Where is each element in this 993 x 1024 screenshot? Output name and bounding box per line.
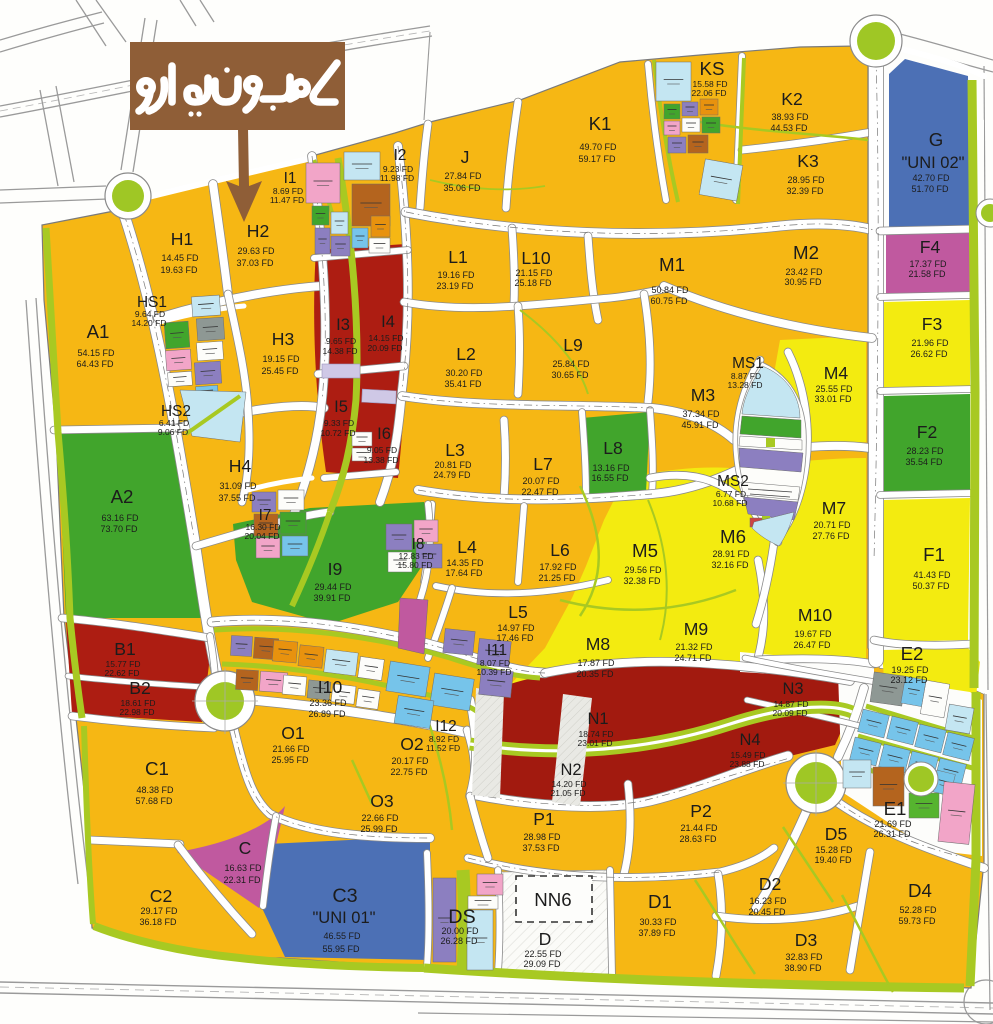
svg-text:57.68 FD: 57.68 FD <box>135 796 173 806</box>
svg-text:M10: M10 <box>798 605 832 625</box>
svg-text:29.56 FD: 29.56 FD <box>624 565 662 575</box>
svg-text:M6: M6 <box>720 526 746 547</box>
svg-text:37.34 FD: 37.34 FD <box>682 409 720 419</box>
svg-text:P1: P1 <box>533 809 555 829</box>
svg-text:16.23 FD: 16.23 FD <box>749 896 787 906</box>
svg-text:M5: M5 <box>632 540 658 561</box>
svg-text:16.55 FD: 16.55 FD <box>591 473 629 483</box>
svg-text:32.16 FD: 32.16 FD <box>711 560 749 570</box>
svg-text:26.28 FD: 26.28 FD <box>440 936 478 946</box>
svg-text:C1: C1 <box>145 758 169 779</box>
svg-text:20.45 FD: 20.45 FD <box>748 907 786 917</box>
svg-text:I11: I11 <box>487 642 507 659</box>
svg-text:10.72 FD: 10.72 FD <box>321 428 356 438</box>
svg-text:26.89 FD: 26.89 FD <box>308 709 346 719</box>
svg-text:F1: F1 <box>923 544 945 565</box>
svg-text:23.01 FD: 23.01 FD <box>578 738 613 748</box>
svg-text:17.87 FD: 17.87 FD <box>577 658 615 668</box>
svg-text:I4: I4 <box>381 313 395 331</box>
svg-text:14.38 FD: 14.38 FD <box>323 346 358 356</box>
svg-text:16.63 FD: 16.63 FD <box>224 863 262 873</box>
svg-text:32.83 FD: 32.83 FD <box>785 952 823 962</box>
svg-text:O1: O1 <box>281 723 304 743</box>
svg-text:I2: I2 <box>394 147 407 164</box>
svg-text:50.84 FD: 50.84 FD <box>651 285 689 295</box>
svg-text:37.55 FD: 37.55 FD <box>218 493 256 503</box>
svg-text:K2: K2 <box>781 89 803 109</box>
svg-text:E1: E1 <box>884 798 907 819</box>
svg-text:J: J <box>461 147 470 167</box>
svg-text:I9: I9 <box>328 559 343 579</box>
svg-text:9.33 FD: 9.33 FD <box>324 418 354 428</box>
svg-text:73.70 FD: 73.70 FD <box>100 524 138 534</box>
svg-text:45.91 FD: 45.91 FD <box>681 420 719 430</box>
svg-text:P2: P2 <box>690 801 712 821</box>
svg-text:29.09 FD: 29.09 FD <box>523 959 561 969</box>
svg-text:N1: N1 <box>587 710 608 728</box>
svg-text:32.38 FD: 32.38 FD <box>623 576 661 586</box>
svg-text:37.53 FD: 37.53 FD <box>522 843 560 853</box>
svg-text:20.07 FD: 20.07 FD <box>522 476 560 486</box>
svg-text:22.47 FD: 22.47 FD <box>521 487 559 497</box>
svg-text:M4: M4 <box>824 363 849 383</box>
svg-text:14.45 FD: 14.45 FD <box>161 253 199 263</box>
svg-text:28.23 FD: 28.23 FD <box>906 446 944 456</box>
svg-text:D: D <box>539 929 552 949</box>
svg-text:60.75 FD: 60.75 FD <box>650 296 688 306</box>
svg-text:21.25 FD: 21.25 FD <box>538 573 576 583</box>
svg-text:22.66 FD: 22.66 FD <box>361 813 399 823</box>
svg-text:N2: N2 <box>560 761 581 779</box>
svg-text:37.03 FD: 37.03 FD <box>236 258 274 268</box>
svg-text:25.18 FD: 25.18 FD <box>514 278 552 288</box>
svg-text:26.31 FD: 26.31 FD <box>873 829 911 839</box>
svg-text:21.69 FD: 21.69 FD <box>874 819 912 829</box>
svg-text:L6: L6 <box>550 540 570 560</box>
svg-text:14.20 FD: 14.20 FD <box>132 318 167 328</box>
svg-text:D3: D3 <box>795 930 818 950</box>
svg-text:L2: L2 <box>456 344 476 364</box>
svg-text:32.39 FD: 32.39 FD <box>786 186 824 196</box>
svg-text:L3: L3 <box>445 440 465 460</box>
svg-text:I5: I5 <box>334 398 348 416</box>
svg-text:L1: L1 <box>448 247 468 267</box>
svg-text:46.55 FD: 46.55 FD <box>323 931 361 941</box>
svg-text:M9: M9 <box>684 619 708 639</box>
svg-text:I3: I3 <box>336 316 350 334</box>
svg-text:M2: M2 <box>793 242 819 263</box>
svg-text:59.17 FD: 59.17 FD <box>578 154 616 164</box>
svg-text:39.91 FD: 39.91 FD <box>313 593 351 603</box>
svg-text:A1: A1 <box>87 321 110 342</box>
svg-text:B2: B2 <box>129 678 151 698</box>
svg-text:DS: DS <box>448 906 475 928</box>
svg-text:D5: D5 <box>825 824 848 844</box>
svg-text:54.15 FD: 54.15 FD <box>77 348 115 358</box>
svg-text:28.63 FD: 28.63 FD <box>679 834 717 844</box>
svg-text:D4: D4 <box>908 880 932 901</box>
svg-text:17.92 FD: 17.92 FD <box>539 562 577 572</box>
svg-text:42.70 FD: 42.70 FD <box>912 173 950 183</box>
svg-text:A2: A2 <box>111 486 134 507</box>
svg-text:30.95 FD: 30.95 FD <box>784 277 822 287</box>
svg-text:19.63 FD: 19.63 FD <box>160 265 198 275</box>
svg-text:9.05 FD: 9.05 FD <box>367 445 397 455</box>
svg-text:M7: M7 <box>822 498 846 518</box>
svg-text:G: G <box>929 129 944 150</box>
svg-text:21.32 FD: 21.32 FD <box>675 642 713 652</box>
svg-text:15.28 FD: 15.28 FD <box>815 845 853 855</box>
svg-text:F3: F3 <box>922 314 943 334</box>
svg-text:22.31 FD: 22.31 FD <box>223 875 261 885</box>
svg-text:H1: H1 <box>171 229 194 249</box>
svg-text:10.39 FD: 10.39 FD <box>477 667 512 677</box>
svg-text:25.95 FD: 25.95 FD <box>271 755 309 765</box>
svg-text:C: C <box>239 838 252 858</box>
svg-text:NN6: NN6 <box>534 889 571 910</box>
svg-text:14.35 FD: 14.35 FD <box>446 558 484 568</box>
svg-text:19.16 FD: 19.16 FD <box>437 270 475 280</box>
svg-text:29.63 FD: 29.63 FD <box>237 246 275 256</box>
svg-text:30.33 FD: 30.33 FD <box>639 917 677 927</box>
svg-text:25.45 FD: 25.45 FD <box>261 366 299 376</box>
svg-text:21.15 FD: 21.15 FD <box>515 268 553 278</box>
svg-text:21.96 FD: 21.96 FD <box>911 338 949 348</box>
svg-text:N3: N3 <box>782 680 803 698</box>
svg-text:20.00 FD: 20.00 FD <box>441 926 479 936</box>
svg-text:I12: I12 <box>435 718 456 735</box>
svg-text:25.99 FD: 25.99 FD <box>360 824 398 834</box>
svg-text:21.44 FD: 21.44 FD <box>680 823 718 833</box>
svg-text:"UNI 01": "UNI 01" <box>312 909 375 927</box>
svg-text:49.70 FD: 49.70 FD <box>579 142 617 152</box>
svg-text:29.17 FD: 29.17 FD <box>140 906 178 916</box>
svg-text:19.67 FD: 19.67 FD <box>794 629 832 639</box>
svg-text:KS: KS <box>700 58 725 79</box>
svg-text:M3: M3 <box>691 385 716 405</box>
svg-text:35.06 FD: 35.06 FD <box>443 183 481 193</box>
svg-text:M8: M8 <box>586 634 611 654</box>
svg-text:20.81 FD: 20.81 FD <box>434 460 472 470</box>
svg-text:F2: F2 <box>917 422 938 442</box>
svg-text:17.64 FD: 17.64 FD <box>445 568 483 578</box>
svg-text:17.46 FD: 17.46 FD <box>496 633 534 643</box>
svg-text:13.38 FD: 13.38 FD <box>364 455 399 465</box>
svg-text:21.05 FD: 21.05 FD <box>551 788 586 798</box>
svg-text:23.88 FD: 23.88 FD <box>730 759 765 769</box>
svg-text:63.16 FD: 63.16 FD <box>101 513 139 523</box>
svg-text:13.16 FD: 13.16 FD <box>592 463 630 473</box>
svg-text:48.38 FD: 48.38 FD <box>136 785 174 795</box>
svg-text:23.12 FD: 23.12 FD <box>890 675 928 685</box>
svg-text:20.17 FD: 20.17 FD <box>391 756 429 766</box>
svg-text:9.65 FD: 9.65 FD <box>326 336 356 346</box>
svg-text:11.52 FD: 11.52 FD <box>426 743 460 753</box>
svg-text:31.09 FD: 31.09 FD <box>219 481 257 491</box>
svg-text:H3: H3 <box>272 329 295 349</box>
svg-text:13.28 FD: 13.28 FD <box>728 380 763 390</box>
svg-text:35.41 FD: 35.41 FD <box>444 379 482 389</box>
svg-text:H2: H2 <box>247 221 270 241</box>
svg-text:19.15 FD: 19.15 FD <box>262 354 300 364</box>
svg-text:L7: L7 <box>533 454 553 474</box>
svg-text:41.43 FD: 41.43 FD <box>913 570 951 580</box>
svg-text:MS1: MS1 <box>732 355 764 372</box>
svg-text:25.84 FD: 25.84 FD <box>552 359 590 369</box>
svg-text:33.01 FD: 33.01 FD <box>814 394 852 404</box>
svg-text:17.37 FD: 17.37 FD <box>909 259 947 269</box>
svg-text:10.68 FD: 10.68 FD <box>713 498 748 508</box>
svg-text:23.19 FD: 23.19 FD <box>436 281 474 291</box>
svg-text:L8: L8 <box>603 438 623 458</box>
svg-text:C2: C2 <box>150 886 173 906</box>
svg-text:28.91 FD: 28.91 FD <box>712 549 750 559</box>
svg-text:26.62 FD: 26.62 FD <box>910 349 948 359</box>
svg-text:H4: H4 <box>229 456 252 476</box>
svg-text:30.65 FD: 30.65 FD <box>551 370 589 380</box>
svg-text:L9: L9 <box>563 335 583 355</box>
svg-text:29.44 FD: 29.44 FD <box>314 582 352 592</box>
svg-text:37.89 FD: 37.89 FD <box>638 928 676 938</box>
svg-text:L5: L5 <box>508 602 528 622</box>
svg-text:55.95 FD: 55.95 FD <box>322 944 360 954</box>
svg-text:44.53 FD: 44.53 FD <box>770 123 808 133</box>
svg-text:B1: B1 <box>114 639 136 659</box>
svg-text:L4: L4 <box>457 537 477 557</box>
svg-text:N4: N4 <box>739 731 760 749</box>
svg-text:25.55 FD: 25.55 FD <box>815 384 853 394</box>
svg-text:K3: K3 <box>797 151 819 171</box>
svg-text:22.55 FD: 22.55 FD <box>524 949 562 959</box>
svg-text:I6: I6 <box>377 425 391 443</box>
svg-text:F4: F4 <box>920 237 941 257</box>
svg-text:I10: I10 <box>318 677 343 697</box>
svg-text:19.40 FD: 19.40 FD <box>814 855 852 865</box>
svg-text:21.66 FD: 21.66 FD <box>272 744 310 754</box>
svg-text:22.75 FD: 22.75 FD <box>390 767 428 777</box>
svg-text:9.06 FD: 9.06 FD <box>158 427 188 437</box>
svg-text:K1: K1 <box>589 113 612 134</box>
svg-text:64.43 FD: 64.43 FD <box>76 359 114 369</box>
svg-text:"UNI 02": "UNI 02" <box>901 154 964 172</box>
svg-text:23.42 FD: 23.42 FD <box>785 267 823 277</box>
svg-text:14.97 FD: 14.97 FD <box>497 623 535 633</box>
svg-text:36.18 FD: 36.18 FD <box>139 917 177 927</box>
svg-text:38.90 FD: 38.90 FD <box>784 963 822 973</box>
svg-text:50.37 FD: 50.37 FD <box>912 581 950 591</box>
svg-text:11.98 FD: 11.98 FD <box>380 173 414 183</box>
svg-text:19.25 FD: 19.25 FD <box>891 665 929 675</box>
svg-text:59.73 FD: 59.73 FD <box>898 916 936 926</box>
svg-text:22.62 FD: 22.62 FD <box>105 668 140 678</box>
svg-text:21.58 FD: 21.58 FD <box>908 269 946 279</box>
svg-text:51.70 FD: 51.70 FD <box>911 184 949 194</box>
svg-text:35.54 FD: 35.54 FD <box>905 457 943 467</box>
svg-text:24.79 FD: 24.79 FD <box>433 470 471 480</box>
svg-text:20.09 FD: 20.09 FD <box>368 343 403 353</box>
svg-text:38.93 FD: 38.93 FD <box>771 112 809 122</box>
svg-text:24.71 FD: 24.71 FD <box>674 653 712 663</box>
svg-text:L10: L10 <box>521 248 551 268</box>
svg-text:11.47 FD: 11.47 FD <box>270 195 304 205</box>
svg-text:C3: C3 <box>332 885 357 907</box>
svg-text:30.20 FD: 30.20 FD <box>445 368 483 378</box>
svg-text:M1: M1 <box>659 254 685 275</box>
svg-text:22.98 FD: 22.98 FD <box>120 707 155 717</box>
svg-text:26.47 FD: 26.47 FD <box>793 640 831 650</box>
svg-text:14.15 FD: 14.15 FD <box>369 333 404 343</box>
svg-text:22.06 FD: 22.06 FD <box>692 88 727 98</box>
svg-text:O3: O3 <box>370 791 394 811</box>
svg-text:23.36 FD: 23.36 FD <box>309 698 347 708</box>
svg-text:20.09 FD: 20.09 FD <box>773 708 808 718</box>
svg-text:52.28 FD: 52.28 FD <box>899 905 937 915</box>
svg-text:I1: I1 <box>284 170 297 187</box>
svg-text:15.80 FD: 15.80 FD <box>398 560 433 570</box>
svg-text:20.35 FD: 20.35 FD <box>576 669 614 679</box>
svg-text:O2: O2 <box>400 734 423 754</box>
svg-text:D1: D1 <box>648 891 672 912</box>
svg-text:MS2: MS2 <box>717 473 749 490</box>
svg-text:20.04 FD: 20.04 FD <box>245 531 280 541</box>
svg-text:E2: E2 <box>901 643 924 664</box>
svg-text:20.71 FD: 20.71 FD <box>813 520 851 530</box>
svg-text:27.84 FD: 27.84 FD <box>444 171 482 181</box>
svg-text:27.76 FD: 27.76 FD <box>812 531 850 541</box>
svg-text:28.98 FD: 28.98 FD <box>523 832 561 842</box>
svg-text:28.95 FD: 28.95 FD <box>787 175 825 185</box>
svg-text:D2: D2 <box>759 874 782 894</box>
